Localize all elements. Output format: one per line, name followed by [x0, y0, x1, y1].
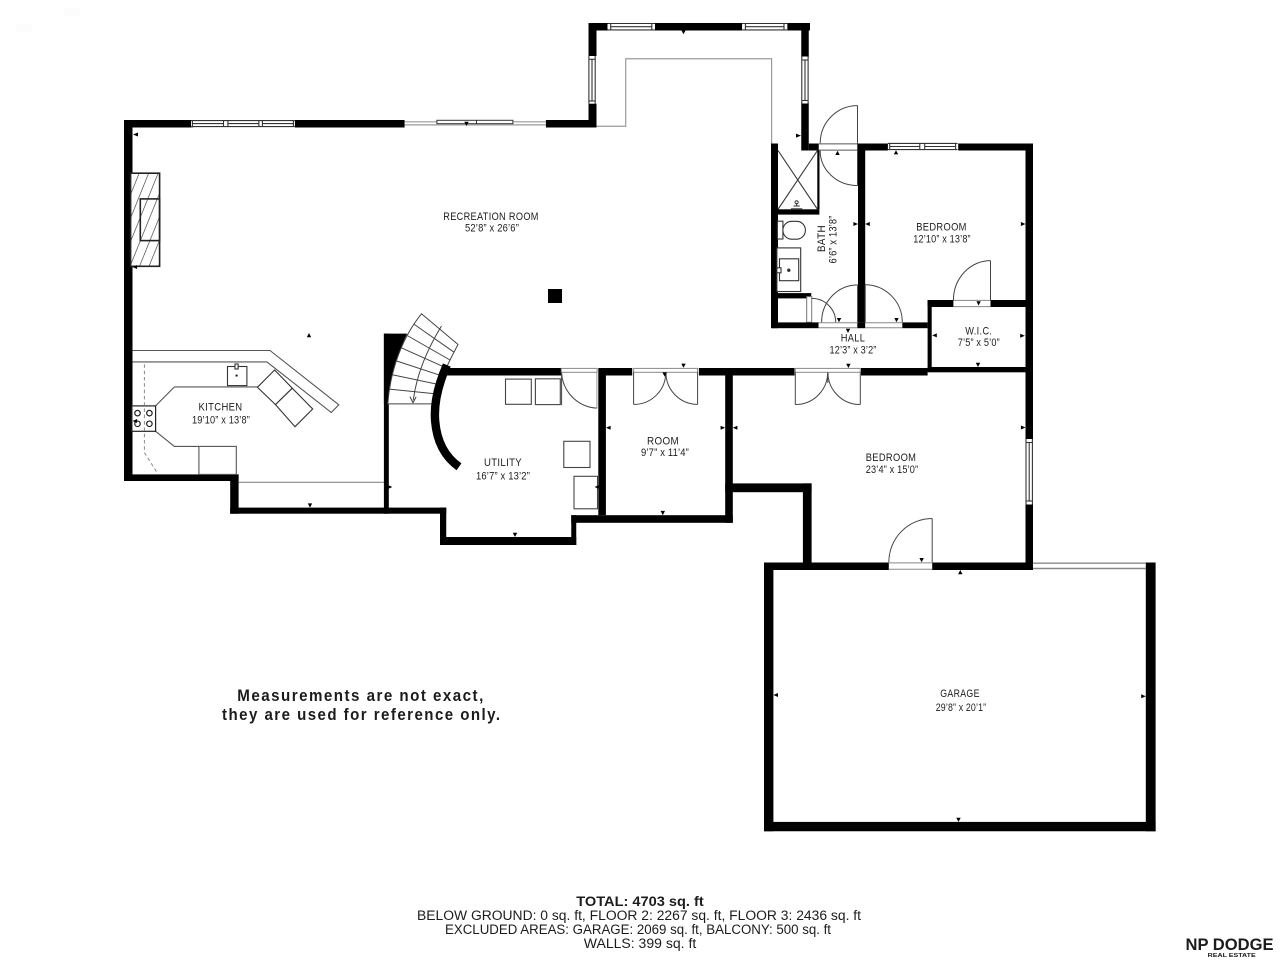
- svg-text:W.I.C.: W.I.C.: [965, 326, 992, 338]
- svg-text:BEDROOM: BEDROOM: [866, 452, 917, 464]
- svg-text:7’5” x 5’0”: 7’5” x 5’0”: [958, 337, 1000, 349]
- svg-text:KITCHEN: KITCHEN: [199, 402, 243, 414]
- svg-text:23’4” x 15’0”: 23’4” x 15’0”: [866, 464, 919, 476]
- svg-text:19’10” x 13’8”: 19’10” x 13’8”: [192, 415, 250, 427]
- svg-text:EXCLUDED AREAS: GARAGE: 2069 s: EXCLUDED AREAS: GARAGE: 2069 sq. ft, BAL…: [445, 922, 831, 937]
- svg-text:BELOW GROUND: 0 sq. ft, FLOOR: BELOW GROUND: 0 sq. ft, FLOOR 2: 2267 sq…: [417, 908, 861, 923]
- svg-text:UTILITY: UTILITY: [484, 457, 522, 469]
- svg-text:9’7” x 11’4”: 9’7” x 11’4”: [641, 447, 689, 459]
- svg-text:Measurements are not exact,: Measurements are not exact,: [237, 687, 485, 705]
- svg-text:TOTAL: 4703 sq. ft: TOTAL: 4703 sq. ft: [576, 894, 704, 909]
- svg-text:BATH: BATH: [816, 225, 828, 252]
- svg-text:WALLS: 399 sq. ft: WALLS: 399 sq. ft: [584, 936, 697, 951]
- svg-text:GARAGE: GARAGE: [940, 688, 980, 700]
- svg-text:REAL ESTATE: REAL ESTATE: [1208, 953, 1256, 959]
- svg-text:52’8” x 26’6”: 52’8” x 26’6”: [465, 223, 519, 235]
- svg-text:16’7” x 13’2”: 16’7” x 13’2”: [476, 471, 530, 483]
- svg-text:12’10” x 13’8”: 12’10” x 13’8”: [913, 234, 971, 246]
- svg-text:6’6” x 13’8”: 6’6” x 13’8”: [828, 215, 840, 263]
- svg-text:RECREATION ROOM: RECREATION ROOM: [443, 211, 539, 223]
- svg-text:12’3” x 3’2”: 12’3” x 3’2”: [830, 345, 877, 357]
- svg-text:29’8” x 20’1”: 29’8” x 20’1”: [936, 702, 987, 714]
- svg-text:HALL: HALL: [841, 333, 866, 345]
- svg-text:NP DODGE: NP DODGE: [1186, 936, 1274, 954]
- svg-text:BEDROOM: BEDROOM: [916, 222, 967, 234]
- svg-text:ROOM: ROOM: [647, 436, 679, 448]
- svg-text:they are used for reference on: they are used for reference only.: [222, 706, 502, 724]
